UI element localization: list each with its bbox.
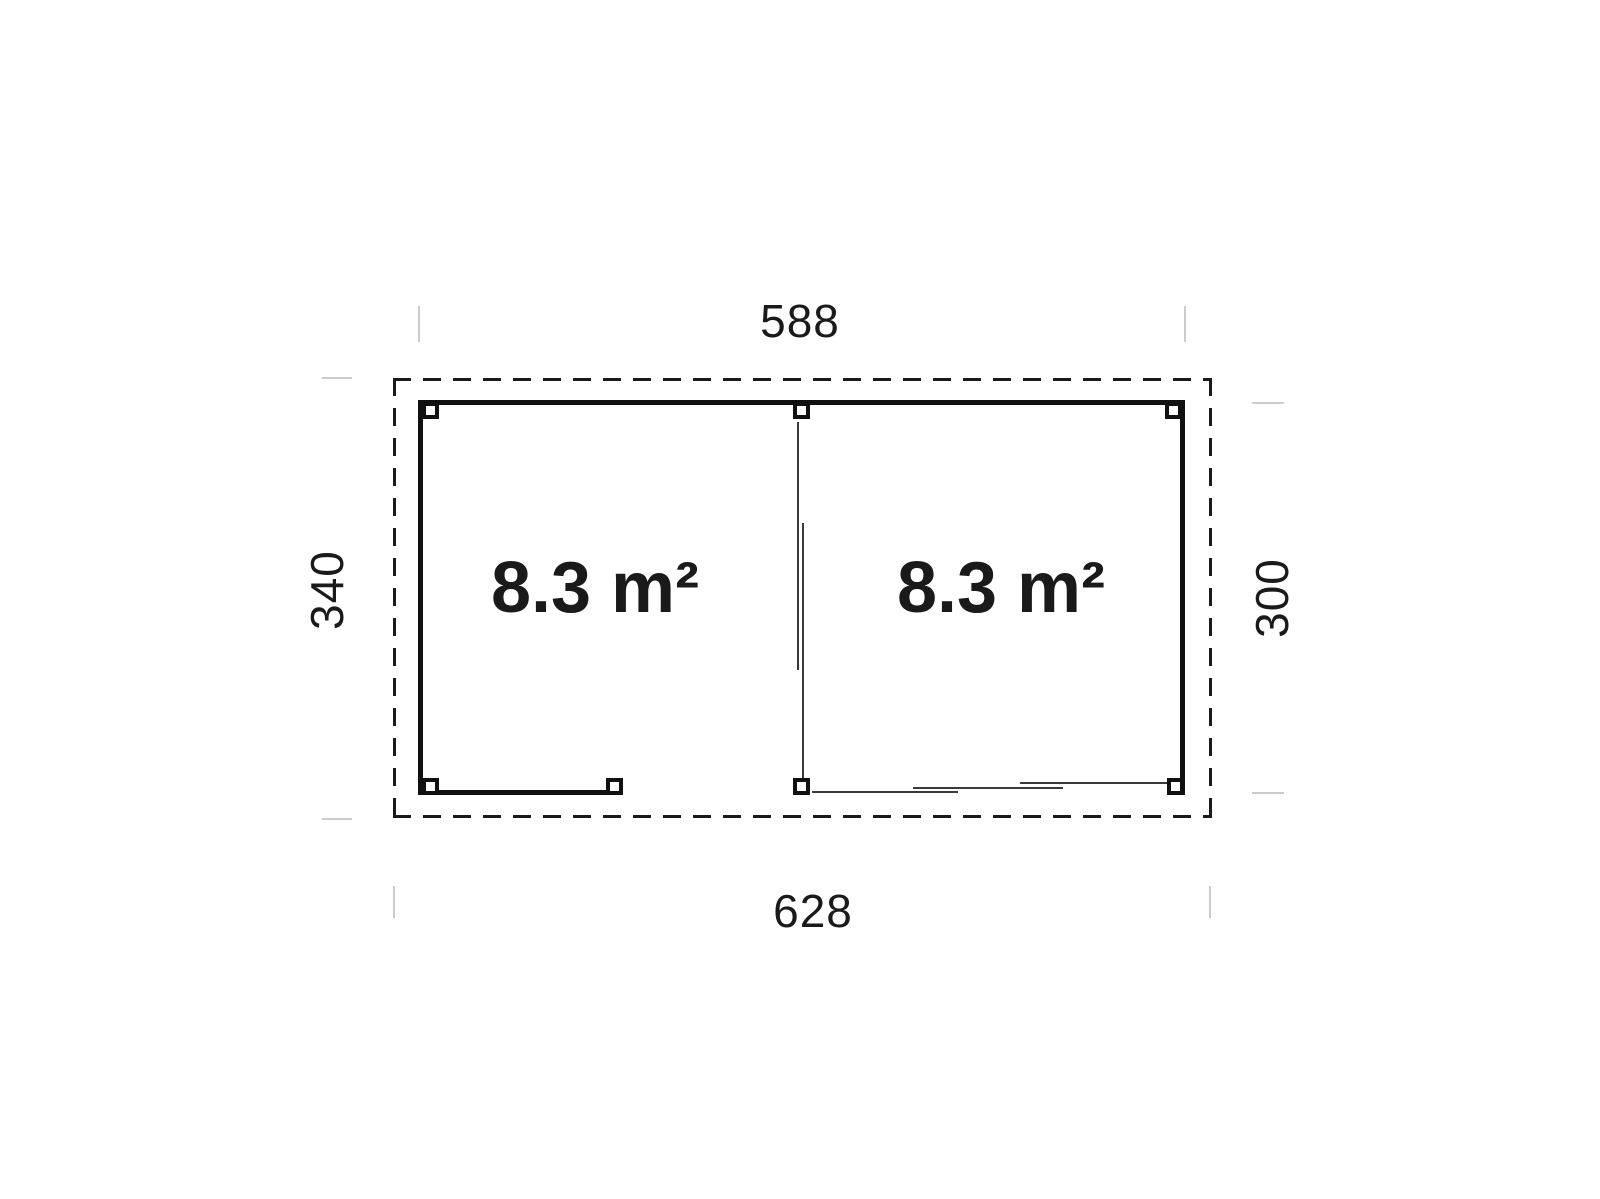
extension-tick-top-width-left — [418, 306, 420, 342]
roof-outline-top — [393, 378, 1212, 381]
post-bottom-terrace-end — [606, 778, 623, 795]
roof-outline-bottom — [393, 815, 1212, 818]
extension-tick-bottom-width-right — [1209, 886, 1211, 918]
post-bottom-middle — [793, 778, 810, 795]
corner-post-bottom-left — [422, 778, 439, 795]
sliding-door-track-3 — [812, 791, 958, 793]
room-area-label-right: 8.3 m² — [801, 552, 1201, 624]
wall-bottom-left — [418, 790, 623, 795]
corner-post-bottom-right — [1167, 778, 1184, 795]
extension-tick-top-width-right — [1184, 306, 1186, 342]
extension-tick-right-depth-bottom — [1252, 792, 1284, 794]
dimension-label-left: 340 — [302, 490, 352, 690]
floor-plan-canvas: 588 628 340 300 8.3 m² 8.3 m² — [0, 0, 1600, 1199]
room-area-label-left: 8.3 m² — [395, 552, 795, 624]
extension-tick-bottom-width-left — [393, 886, 395, 918]
extension-tick-left-depth-top — [322, 377, 352, 379]
extension-tick-left-depth-bottom — [322, 818, 352, 820]
corner-post-top-left — [422, 402, 439, 419]
sliding-door-track-1 — [1020, 782, 1167, 784]
dimension-label-right: 300 — [1247, 498, 1297, 698]
dimension-label-bottom: 628 — [713, 886, 913, 936]
dimension-label-top: 588 — [700, 296, 900, 346]
corner-post-top-right — [1165, 402, 1182, 419]
roof-outline-right — [1209, 378, 1212, 818]
partition-glass-line-1 — [797, 422, 799, 670]
sliding-door-track-2 — [913, 787, 1063, 789]
extension-tick-right-depth-top — [1252, 402, 1284, 404]
post-top-middle — [793, 402, 810, 419]
